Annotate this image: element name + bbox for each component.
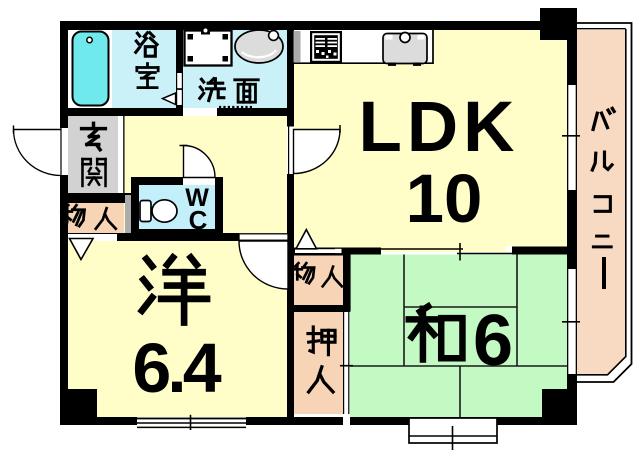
- svg-text:10: 10: [406, 160, 483, 237]
- svg-text:6: 6: [473, 301, 513, 381]
- svg-text:C: C: [189, 205, 208, 235]
- svg-text:6.4: 6.4: [132, 329, 221, 407]
- svg-text:LDK: LDK: [359, 88, 520, 167]
